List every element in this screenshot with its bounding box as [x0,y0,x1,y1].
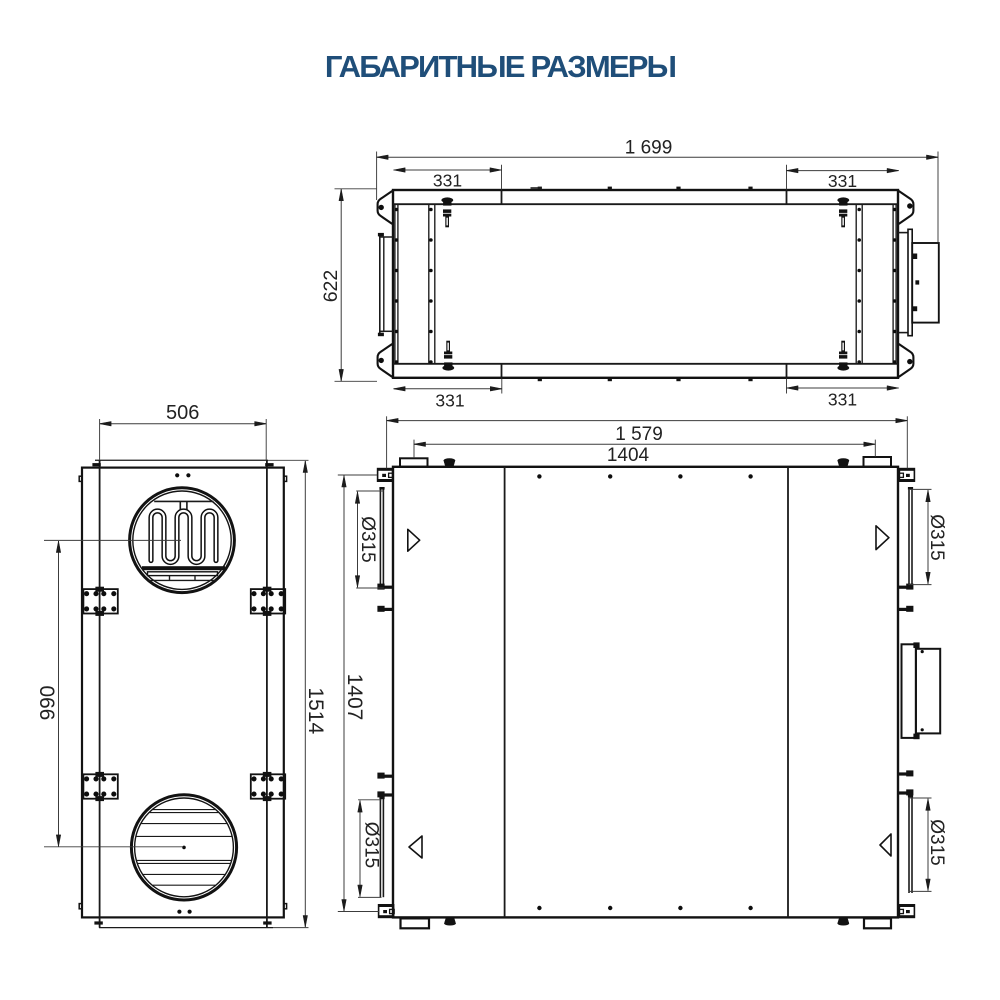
svg-text:1407: 1407 [343,674,366,721]
svg-text:331: 331 [433,171,462,191]
svg-text:331: 331 [828,171,857,191]
svg-text:506: 506 [166,402,199,424]
svg-text:Ø315: Ø315 [926,819,947,865]
svg-text:990: 990 [36,685,59,720]
svg-text:1514: 1514 [304,687,327,734]
svg-text:Ø315: Ø315 [357,516,378,562]
svg-text:Ø315: Ø315 [360,822,381,868]
svg-text:1404: 1404 [607,445,650,466]
svg-text:622: 622 [320,270,342,303]
svg-text:331: 331 [828,390,857,410]
svg-text:Ø315: Ø315 [926,514,947,560]
svg-text:1 579: 1 579 [615,424,663,445]
svg-text:331: 331 [435,391,464,411]
svg-text:1 699: 1 699 [625,137,673,158]
